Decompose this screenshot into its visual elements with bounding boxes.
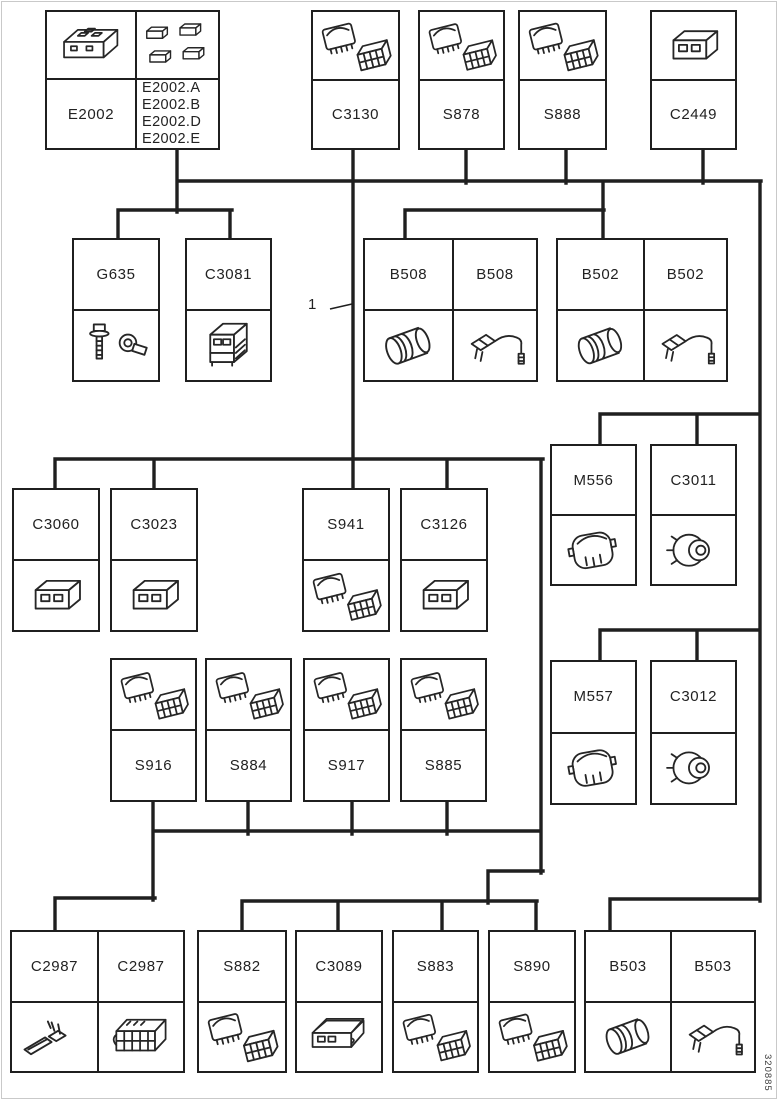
connector-icon	[14, 559, 98, 630]
component-label: B508	[365, 240, 452, 309]
component-box-s917: S917	[303, 658, 390, 802]
component-label: S885	[402, 729, 485, 800]
component-box-e2002: E2002E2002.AE2002.BE2002.DE2002.E	[45, 10, 220, 150]
switch-connector-icon	[112, 660, 195, 729]
connector-block-icon	[99, 1001, 183, 1072]
terminal-pin-icon	[12, 1001, 97, 1072]
connector-icon	[112, 559, 196, 630]
component-box-s888: S888	[518, 10, 607, 150]
relay-module-icon	[187, 309, 270, 380]
component-box-c3089: C3089	[295, 930, 383, 1073]
component-label: C3089	[297, 932, 381, 1001]
component-label: C3126	[402, 490, 486, 559]
component-box-c3023: C3023	[110, 488, 198, 632]
round-connector-icon	[652, 514, 735, 584]
component-label: C3130	[313, 79, 398, 148]
component-box-m557: M557	[550, 660, 637, 805]
switch-connector-icon	[490, 1001, 574, 1072]
component-box-g635: G635	[72, 238, 160, 382]
component-label: S888	[520, 79, 605, 148]
switch-connector-icon	[304, 559, 388, 630]
component-box-c3081: C3081	[185, 238, 272, 382]
component-label: M557	[552, 662, 635, 732]
switch-connector-icon	[402, 660, 485, 729]
component-label: S883	[394, 932, 477, 1001]
switch-connector-icon	[420, 12, 503, 79]
component-box-c2987: C2987	[10, 930, 99, 1073]
component-label: C3011	[652, 446, 735, 514]
component-label: E2002	[47, 78, 135, 148]
component-label: B508	[454, 240, 536, 309]
component-label: B502	[645, 240, 726, 309]
component-label: C3060	[14, 490, 98, 559]
switch-connector-icon	[305, 660, 388, 729]
bulb-holder-icon	[672, 1001, 754, 1072]
switch-connector-icon	[313, 12, 398, 79]
component-label: S882	[199, 932, 285, 1001]
component-box-b502: B502	[556, 238, 645, 382]
bulb-holder-icon	[454, 309, 536, 380]
switch-connector-icon	[394, 1001, 477, 1072]
component-box-c3011: C3011	[650, 444, 737, 586]
bulb-socket-icon	[365, 309, 452, 380]
component-label: C2449	[652, 79, 735, 148]
component-label: C3081	[187, 240, 270, 309]
covered-connector-icon	[297, 1001, 381, 1072]
wiring-connector-diagram-page: E2002E2002.AE2002.BE2002.DE2002.EC3130S8…	[0, 0, 778, 1100]
component-label: S941	[304, 490, 388, 559]
footer-drawing-code: 320885	[762, 1054, 773, 1092]
component-variant-label: E2002.E	[142, 131, 200, 148]
component-box-s890: S890	[488, 930, 576, 1073]
component-box-s941: S941	[302, 488, 390, 632]
component-box-c3126: C3126	[400, 488, 488, 632]
component-box-s885: S885	[400, 658, 487, 802]
component-box-s916: S916	[110, 658, 197, 802]
switch-connector-icon	[199, 1001, 285, 1072]
component-label: G635	[74, 240, 158, 309]
component-box-s884: S884	[205, 658, 292, 802]
connector-icon	[652, 12, 735, 79]
connector-icon	[402, 559, 486, 630]
component-label: C3012	[652, 662, 735, 732]
bulb-socket-icon	[586, 1001, 670, 1072]
mini-connectors-icon	[135, 12, 218, 78]
component-box-c3012: C3012	[650, 660, 737, 805]
component-variant-label: E2002.A	[142, 80, 200, 97]
component-label: S884	[207, 729, 290, 800]
component-box-b503: B503	[670, 930, 756, 1073]
motor-connector-icon	[552, 514, 635, 584]
module-icon	[47, 12, 135, 78]
ground-terminal-icon	[74, 309, 158, 380]
component-box-c2987: C2987	[97, 930, 185, 1073]
component-label: C2987	[99, 932, 183, 1001]
bulb-holder-icon	[645, 309, 726, 380]
switch-connector-icon	[520, 12, 605, 79]
component-label: M556	[552, 446, 635, 514]
component-box-c3060: C3060	[12, 488, 100, 632]
component-box-c3130: C3130	[311, 10, 400, 150]
component-box-s878: S878	[418, 10, 505, 150]
round-connector-icon	[652, 732, 735, 804]
component-label: C2987	[12, 932, 97, 1001]
component-box-b503: B503	[584, 930, 672, 1073]
component-box-b508: B508	[452, 238, 538, 382]
component-box-c2449: C2449	[650, 10, 737, 150]
component-box-b508: B508	[363, 238, 454, 382]
component-box-m556: M556	[550, 444, 637, 586]
bulb-socket-icon	[558, 309, 643, 380]
component-label: B502	[558, 240, 643, 309]
component-label: S916	[112, 729, 195, 800]
component-variant-label: E2002.D	[142, 114, 201, 131]
component-variant-label: E2002.B	[142, 97, 200, 114]
component-label: B503	[586, 932, 670, 1001]
component-box-b502: B502	[643, 238, 728, 382]
component-box-s882: S882	[197, 930, 287, 1073]
component-label: B503	[672, 932, 754, 1001]
component-label: S878	[420, 79, 503, 148]
switch-connector-icon	[207, 660, 290, 729]
callout-label: 1	[308, 296, 316, 313]
variant-list: E2002.AE2002.BE2002.DE2002.E	[135, 78, 218, 148]
component-label: S917	[305, 729, 388, 800]
component-label: C3023	[112, 490, 196, 559]
component-box-s883: S883	[392, 930, 479, 1073]
component-label: S890	[490, 932, 574, 1001]
motor-connector-icon	[552, 732, 635, 804]
